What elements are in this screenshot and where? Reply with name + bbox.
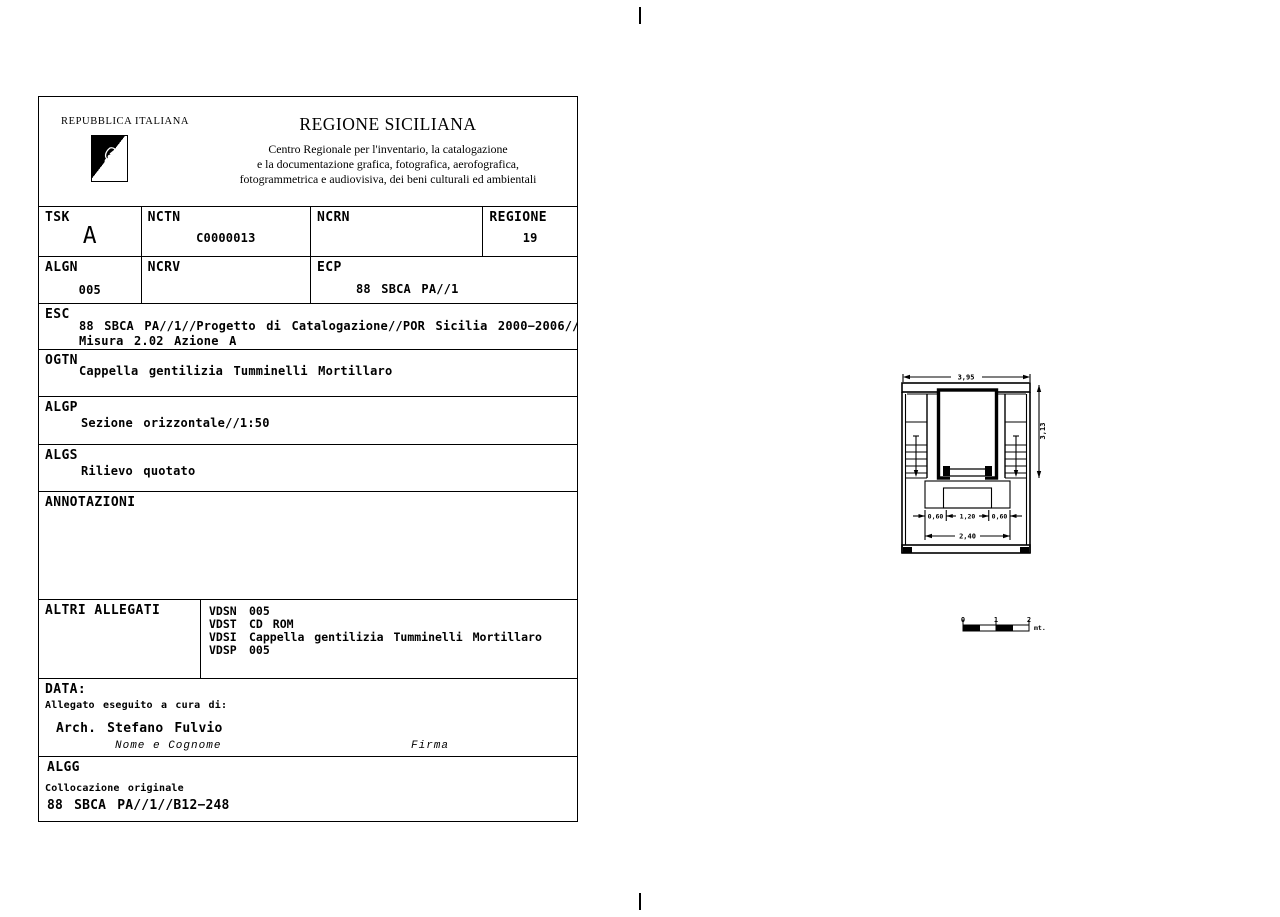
dim-width-top: 3,95 xyxy=(958,374,975,382)
field-esc: ESC 88 SBCA PA//1//Progetto di Catalogaz… xyxy=(39,303,577,349)
field-algn-value: 005 xyxy=(39,283,141,297)
field-algn: ALGN 005 xyxy=(39,257,141,303)
field-ogtn-value: Cappella gentilizia Tumminelli Mortillar… xyxy=(79,364,392,378)
field-ncrn: NCRN xyxy=(310,207,482,256)
list-item: VDSICappella gentilizia Tumminelli Morti… xyxy=(209,630,542,644)
field-regione: REGIONE 19 xyxy=(482,207,577,256)
vdsn-value: 005 xyxy=(249,604,270,618)
field-tsk-value: A xyxy=(39,223,141,249)
form-title: REGIONE SICILIANA xyxy=(199,114,577,135)
field-algs-value: Rilievo quotato xyxy=(81,464,195,478)
scale-bar: 0 1 2 mt. xyxy=(955,610,1060,640)
field-nctn: NCTN C0000013 xyxy=(141,207,310,256)
vdsi-key: VDSI xyxy=(209,630,249,644)
vdsn-key: VDSN xyxy=(209,604,249,618)
form-header: REPUBBLICA ITALIANA REGIONE SICILIANA Ce… xyxy=(39,97,577,206)
list-item: VDSN005 xyxy=(209,604,270,618)
trinacria-icon xyxy=(96,144,124,174)
vdsp-key: VDSP xyxy=(209,643,249,657)
dim-bottom-total: 2,40 xyxy=(959,533,976,541)
field-algp-label: ALGP xyxy=(45,400,78,415)
name-caption: Nome e Cognome xyxy=(115,740,221,752)
field-ogtn: OGTN Cappella gentilizia Tumminelli Mort… xyxy=(39,349,577,396)
scale-tick-1: 1 xyxy=(994,616,998,624)
field-regione-label: REGIONE xyxy=(489,210,547,225)
form-subtitle-line3: fotogrammetrica e audiovisiva, dei beni … xyxy=(199,172,577,187)
field-annotazioni-label: ANNOTAZIONI xyxy=(45,495,136,510)
data-caption: Allegato eseguito a cura di: xyxy=(45,700,227,711)
field-annotazioni: ANNOTAZIONI xyxy=(39,491,577,599)
algg-label: ALGG xyxy=(47,760,80,775)
plan-section-drawing: 3,95 3,13 0,60 1,20 0,60 2,40 xyxy=(893,366,1049,566)
field-ecp: ECP 88 SBCA PA//1 xyxy=(310,257,577,303)
field-nctn-value: C0000013 xyxy=(142,231,310,245)
vdsp-value: 005 xyxy=(249,643,270,657)
field-algp-value: Sezione orizzontale//1:50 xyxy=(81,416,270,430)
field-tsk: TSK A xyxy=(39,207,141,256)
field-algs-label: ALGS xyxy=(45,448,78,463)
list-item: VDSTCD ROM xyxy=(209,617,294,631)
scale-tick-0: 0 xyxy=(961,616,965,624)
dim-height-right: 3,13 xyxy=(1039,423,1047,440)
altri-allegati-label: ALTRI ALLEGATI xyxy=(45,603,160,618)
field-regione-value: 19 xyxy=(483,231,577,245)
field-esc-value-line1: 88 SBCA PA//1//Progetto di Catalogazione… xyxy=(79,319,577,334)
field-algs: ALGS Rilievo quotato xyxy=(39,444,577,491)
author-name: Arch. Stefano Fulvio xyxy=(56,721,223,736)
section-algg: ALGG Collocazione originale 88 SBCA PA//… xyxy=(39,756,577,820)
field-esc-label: ESC xyxy=(45,307,70,322)
vdst-key: VDST xyxy=(209,617,249,631)
form-subtitle-line1: Centro Regionale per l'inventario, la ca… xyxy=(199,142,577,157)
section-data: DATA: Allegato eseguito a cura di: Arch.… xyxy=(39,678,577,756)
vdsi-value: Cappella gentilizia Tumminelli Mortillar… xyxy=(249,630,542,644)
sicily-emblem-logo xyxy=(91,135,128,182)
field-ecp-value: 88 SBCA PA//1 xyxy=(356,282,459,296)
field-ncrv: NCRV xyxy=(141,257,310,303)
title-block: REGIONE SICILIANA Centro Regionale per l… xyxy=(199,114,577,187)
field-esc-value-line2: Misura 2.02 Azione A xyxy=(79,334,577,349)
algg-value: 88 SBCA PA//1//B12−248 xyxy=(47,798,230,813)
catalog-form: REPUBBLICA ITALIANA REGIONE SICILIANA Ce… xyxy=(38,96,578,822)
algg-caption: Collocazione originale xyxy=(45,783,184,794)
form-subtitle-line2: e la documentazione grafica, fotografica… xyxy=(199,157,577,172)
field-ecp-label: ECP xyxy=(317,260,342,275)
field-algn-label: ALGN xyxy=(45,260,78,275)
scale-unit-label: mt. xyxy=(1034,624,1046,632)
field-ogtn-label: OGTN xyxy=(45,353,78,368)
vdst-value: CD ROM xyxy=(249,617,294,631)
row-algn-ncrv-ecp: ALGN 005 NCRV ECP 88 SBCA PA//1 xyxy=(39,256,577,303)
field-ncrv-label: NCRV xyxy=(148,260,181,275)
field-algp: ALGP Sezione orizzontale//1:50 xyxy=(39,396,577,444)
altri-allegati-values-cell: VDSN005 VDSTCD ROM VDSICappella gentiliz… xyxy=(201,600,577,678)
field-nctn-label: NCTN xyxy=(148,210,181,225)
scale-tick-2: 2 xyxy=(1027,616,1031,624)
data-label: DATA: xyxy=(45,682,86,697)
row-tsk-nctn-ncrn-regione: TSK A NCTN C0000013 NCRN REGIONE 19 xyxy=(39,206,577,256)
altri-allegati-label-cell: ALTRI ALLEGATI xyxy=(39,600,201,678)
registration-mark-bottom xyxy=(639,893,641,910)
dim-bottom-left: 0,60 xyxy=(928,513,944,521)
republic-label: REPUBBLICA ITALIANA xyxy=(61,116,189,127)
dim-bottom-right: 0,60 xyxy=(992,513,1008,521)
field-ncrn-label: NCRN xyxy=(317,210,350,225)
firma-caption: Firma xyxy=(411,740,449,752)
section-altri-allegati: ALTRI ALLEGATI VDSN005 VDSTCD ROM VDSICa… xyxy=(39,599,577,678)
registration-mark-top xyxy=(639,7,641,24)
dim-bottom-center: 1,20 xyxy=(960,513,976,521)
list-item: VDSP005 xyxy=(209,643,270,657)
